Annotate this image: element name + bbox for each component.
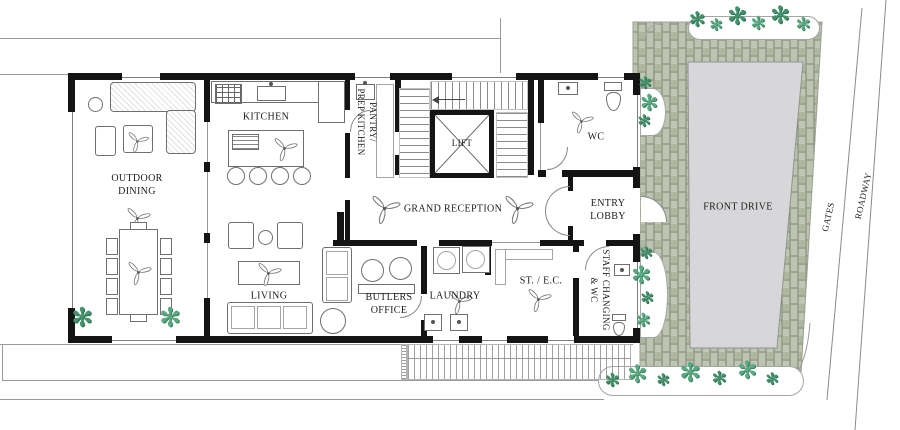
office-chair	[361, 259, 384, 282]
plant-icon: ✻	[727, 5, 747, 29]
room-label-lift: LIFT	[452, 138, 472, 150]
dining-chair	[130, 314, 147, 322]
window	[598, 73, 624, 80]
room-label-st-ec: ST. / E.C.	[520, 274, 562, 287]
faucet	[620, 268, 624, 272]
plant-icon: ✻	[631, 264, 651, 288]
door-post	[204, 162, 210, 172]
wall	[540, 240, 573, 246]
plant-icon: ✻	[635, 311, 650, 329]
sofa-cushion	[231, 306, 255, 329]
dining-chair	[106, 298, 118, 315]
plant-icon: ✻	[770, 4, 790, 28]
room-label-staff-changing: STAFF CHANGING & WC	[587, 249, 611, 330]
site-boundary-line	[0, 38, 500, 39]
plant-icon: ✻	[640, 291, 653, 307]
sink	[257, 86, 286, 101]
site-boundary-line	[500, 18, 501, 74]
sofa-cushion	[257, 306, 281, 329]
faucet	[566, 86, 570, 90]
window	[452, 73, 516, 80]
plant-icon: ✻	[159, 305, 181, 331]
wall	[528, 80, 534, 175]
toilet-tank	[604, 82, 622, 91]
plant-icon: ✻	[656, 373, 669, 389]
bar-stool	[293, 167, 311, 185]
room-label-butlers-office: BUTLERS OFFICE	[366, 291, 413, 317]
dryer-drum	[466, 250, 485, 269]
window	[122, 73, 160, 80]
stairs	[399, 88, 430, 178]
plant-icon: ✻	[71, 305, 93, 331]
wall	[345, 80, 350, 110]
bar-stool	[249, 167, 267, 185]
room-label-entry-lobby: ENTRY LOBBY	[590, 197, 626, 223]
window	[355, 73, 390, 80]
door-arc	[545, 211, 570, 236]
door-opening	[633, 188, 640, 234]
site-label-front-drive: FRONT DRIVE	[703, 200, 773, 213]
armchair	[228, 222, 254, 249]
dining-chair	[106, 258, 118, 275]
window	[433, 336, 459, 343]
faucet	[431, 320, 435, 324]
room-label-laundry: LAUNDRY	[430, 289, 481, 302]
glass-wall	[492, 242, 540, 243]
door-opening	[584, 240, 606, 246]
stairs	[496, 112, 528, 178]
plant-icon: ✻	[750, 14, 765, 32]
plant-icon: ✻	[737, 359, 757, 383]
site-boundary-line	[0, 399, 604, 400]
plant-icon: ✻	[639, 246, 652, 262]
hob	[215, 84, 242, 104]
plant-icon: ✻	[604, 371, 619, 389]
room-label-living: LIVING	[251, 289, 288, 302]
wall	[333, 240, 417, 246]
door-arc	[547, 147, 568, 170]
ottoman	[320, 308, 346, 334]
wall	[204, 298, 210, 336]
plant-icon: ✻	[640, 92, 658, 114]
plant-icon: ✻	[679, 360, 701, 386]
wall	[573, 245, 579, 252]
faucet	[363, 81, 367, 85]
wall	[573, 278, 579, 336]
side-table	[258, 230, 273, 245]
toilet-bowl	[613, 322, 625, 336]
sofa	[110, 82, 196, 112]
window	[68, 112, 75, 308]
kitchen-cabinet	[318, 81, 345, 123]
stairs	[430, 81, 528, 110]
wall	[421, 246, 427, 294]
dining-chair	[106, 278, 118, 295]
room-label-outdoor-dining: OUTDOOR DINING	[111, 172, 162, 198]
site-boundary-line	[2, 344, 3, 381]
room-label-wc: WC	[588, 130, 605, 143]
plant-icon: ✻	[765, 372, 778, 388]
site-boundary-line	[0, 74, 68, 75]
plant-icon: ✻	[637, 114, 650, 130]
side-table	[88, 97, 103, 112]
bar-stool	[227, 167, 245, 185]
sofa-cushion	[326, 251, 348, 275]
plant-icon: ✻	[627, 363, 647, 387]
dining-chair	[130, 222, 147, 230]
floor-plan: ✻ ✻ ✻ ✻ ✻ ✻ ✻ ✻ ✻ ✻ ✻ ✻ ✻ ✻ ✻ ✻ ✻ ✻ ✻ ✻ …	[0, 0, 900, 430]
site-boundary-line	[2, 380, 631, 381]
toilet-tank	[612, 314, 626, 321]
dining-chair	[106, 238, 118, 255]
plant-icon: ✻	[795, 15, 810, 33]
toilet-bowl	[606, 92, 621, 111]
dining-chair	[160, 238, 172, 255]
office-chair	[389, 257, 412, 280]
window	[548, 336, 574, 343]
sofa-cushion	[326, 277, 348, 301]
plant-icon: ✻	[689, 10, 706, 30]
stair-arrow-line	[439, 99, 465, 100]
glass-wall	[207, 122, 208, 298]
room-label-kitchen: KITCHEN	[243, 110, 289, 123]
door-opening	[546, 170, 562, 177]
wall	[345, 133, 350, 178]
storage-counter	[495, 249, 506, 285]
island-cooktop	[232, 134, 259, 150]
sofa	[166, 110, 196, 154]
dining-chair	[160, 278, 172, 295]
wall	[345, 200, 350, 240]
deck-steps	[407, 344, 631, 380]
window	[482, 336, 507, 343]
wall	[204, 80, 210, 122]
washer-drum	[437, 251, 456, 270]
room-label-grand-reception: GRAND RECEPTION	[404, 202, 502, 215]
lounge-chair	[95, 126, 116, 156]
armchair	[277, 222, 303, 249]
window	[112, 336, 176, 343]
deck-line	[407, 358, 631, 359]
glass-wall	[540, 123, 541, 170]
wall	[538, 80, 544, 123]
plant-icon: ✻	[711, 369, 726, 387]
pantry-cabinet	[376, 84, 394, 178]
room-label-pantry: PANTRY/ PREP KITCHEN	[354, 88, 378, 155]
faucet	[457, 320, 461, 324]
wall	[337, 212, 344, 246]
dining-chair	[160, 258, 172, 275]
bar-stool	[271, 167, 289, 185]
door-arc	[545, 186, 570, 211]
plant-icon: ✻	[709, 18, 722, 34]
sofa-cushion	[283, 306, 307, 329]
stair-arrow-head	[432, 96, 439, 104]
door-post	[204, 233, 210, 243]
faucet	[269, 82, 273, 86]
